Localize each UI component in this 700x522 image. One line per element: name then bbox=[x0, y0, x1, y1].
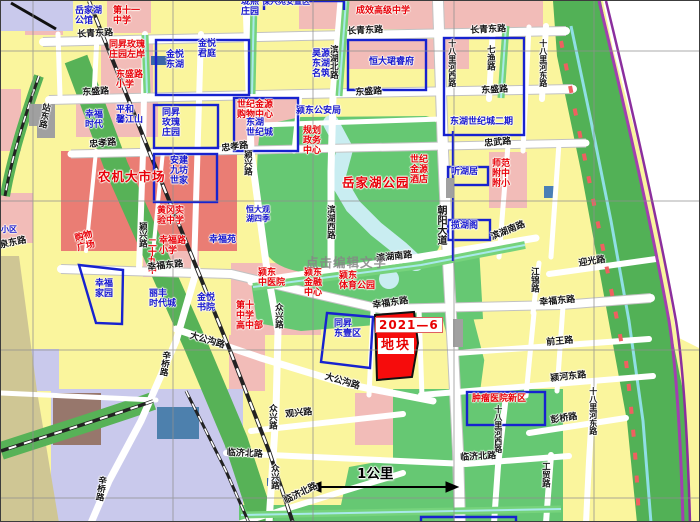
road-label: 众兴路 bbox=[267, 404, 276, 430]
map-label: 肿瘤医院新区 bbox=[472, 395, 526, 405]
map-label: 安建 九坊 世家 bbox=[170, 157, 188, 187]
map-label: 幸福路 小学 bbox=[159, 237, 186, 257]
road-label: 众兴路 bbox=[269, 464, 278, 490]
map-label: 颍东 体育公园 bbox=[339, 272, 375, 292]
map-label: 岳家湖 公馆 bbox=[75, 7, 102, 27]
map-label: 第十 中学 高中部 bbox=[236, 302, 263, 332]
road-label: 长青东路 bbox=[77, 29, 113, 41]
map-label: 黄冈实 验中学 bbox=[157, 207, 184, 227]
road-label: 十八里河东路 bbox=[538, 39, 547, 87]
map-label: 东湖世纪城二期 bbox=[450, 118, 513, 128]
road-label: 朝阳大道 bbox=[435, 205, 446, 245]
map-label: 揽湖阁 bbox=[451, 222, 478, 232]
map-label: 金悦 君庭 bbox=[198, 40, 216, 60]
map-label: 东湖 世纪城 bbox=[246, 119, 273, 139]
map-label: 恒大观 湖四季 bbox=[246, 206, 270, 224]
map-label: 同昇玫瑰 庄园左岸 bbox=[109, 41, 145, 61]
map-label: 听湖居 bbox=[451, 168, 478, 178]
road-label: 颍兴路 bbox=[137, 222, 146, 248]
road-label: 工贸路 bbox=[540, 462, 549, 488]
road-label: 东盛路 bbox=[481, 86, 508, 97]
map-label: 丽丰 时代城 bbox=[149, 290, 176, 310]
map-label: 平和 馨江山 bbox=[116, 106, 143, 126]
map-label: 金悦 书院 bbox=[197, 294, 215, 314]
park-label: 岳家湖公园 bbox=[342, 176, 410, 190]
road-label: 东盛路 bbox=[355, 88, 382, 99]
water-basin bbox=[157, 407, 199, 439]
road-label: 十八里河西路 bbox=[447, 39, 456, 87]
road-label: 长青东路 bbox=[347, 26, 383, 38]
map-label: 小区 bbox=[1, 226, 17, 235]
road-label: 十八里河东路 bbox=[588, 387, 597, 435]
map-label: 幸福 时代 bbox=[85, 111, 103, 131]
map-label: 保兴苑安置区 bbox=[262, 0, 310, 7]
map-label: 规划 政务 中心 bbox=[303, 127, 321, 157]
map-canvas[interactable]: 岳家湖 公馆 第十一 中学 长青东路 长青东路 长青东路 同昇玫瑰 庄园左岸 金… bbox=[0, 0, 700, 522]
map-label: 农机大市场 bbox=[98, 170, 166, 184]
parcel-id-tag: 2021—6 bbox=[375, 317, 443, 333]
road-label: 临济北路 bbox=[460, 452, 496, 464]
road-label: 众兴路 bbox=[273, 303, 282, 329]
road-label: 长青东路 bbox=[470, 25, 506, 37]
road-label: 滨湖西路 bbox=[325, 205, 334, 239]
map-label: 颍东 金融 中心 bbox=[304, 269, 322, 299]
road-label: 东盛路 bbox=[82, 88, 109, 99]
map-label: 同昇 东壹区 bbox=[334, 320, 361, 340]
map-label: 恒大珺睿府 bbox=[369, 58, 414, 68]
map-label: 师范 附中 附小 bbox=[492, 160, 510, 190]
road-label: 临济北路 bbox=[226, 449, 262, 461]
watermark: 点击编辑文字 bbox=[306, 252, 387, 271]
road-label: 颍兴路 bbox=[242, 150, 251, 176]
map-label: 同昇 玫瑰 庄园 bbox=[162, 109, 180, 139]
map-label: 第十一 中学 bbox=[113, 7, 140, 27]
road-label: 滨湖北路 bbox=[328, 45, 337, 79]
map-label: 金悦 东湖 bbox=[166, 51, 184, 71]
map-label: 颍东公安局 bbox=[296, 107, 341, 117]
parcel-name-tag: 地块 bbox=[378, 338, 414, 354]
road-label: 十八里河西路 bbox=[493, 405, 502, 453]
map-label: 世纪 金源 酒店 bbox=[410, 156, 428, 186]
map-label: 珑熙 庄园 bbox=[241, 0, 259, 18]
road-label: 七渔路 bbox=[485, 45, 494, 71]
scale-bar-label: 1公里 bbox=[357, 462, 393, 482]
road-label: 江锦路 bbox=[529, 267, 538, 293]
map-label: 幸福苑 bbox=[209, 236, 236, 246]
map-label: 东盛路 小学 bbox=[116, 71, 143, 91]
map-label: 成效高级中学 bbox=[356, 7, 410, 17]
map-label: 颍东 中医院 bbox=[258, 269, 285, 289]
map-label: 幸福 家园 bbox=[95, 280, 113, 300]
